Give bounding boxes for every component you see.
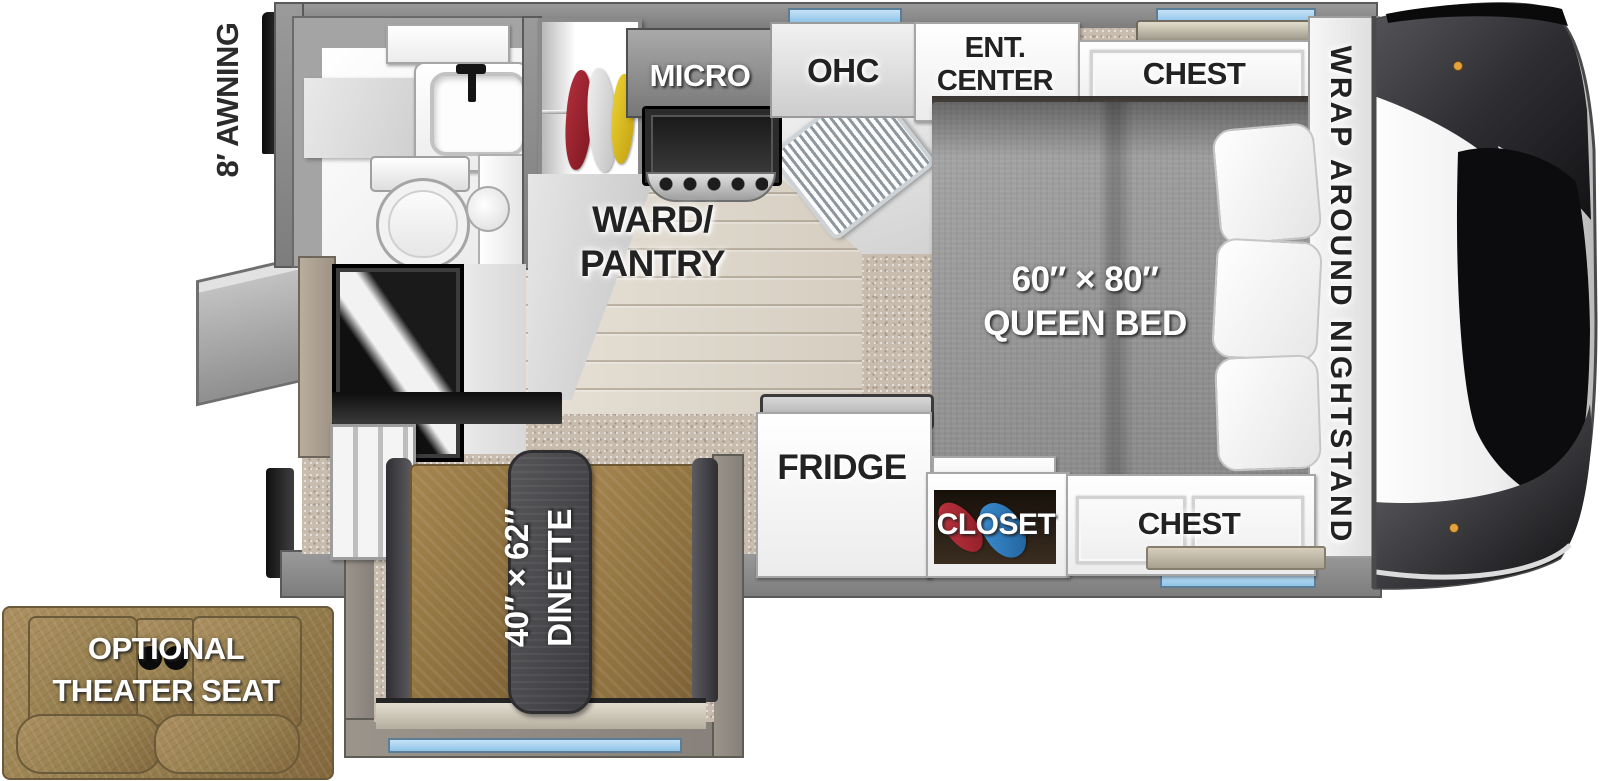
bed-pillow-3 xyxy=(1214,354,1322,472)
ent-center-label: ENT. CENTER xyxy=(916,32,1074,99)
ward-pantry-label-line1: WARD/ xyxy=(540,198,765,242)
nightstand-label: WRAP AROUND NIGHTSTAND xyxy=(1317,45,1357,545)
bed-pillow-1 xyxy=(1211,122,1323,246)
theater-seat-label-line2: THEATER SEAT xyxy=(12,670,320,712)
queen-bed-name: QUEEN BED xyxy=(945,302,1225,346)
shower-head-icon xyxy=(466,186,510,232)
window-top-kitchen xyxy=(788,8,902,24)
toilet-bowl xyxy=(376,178,470,270)
bathroom-overhead-cabinet xyxy=(386,24,510,64)
dinette-backrest-left xyxy=(386,458,412,702)
ent-center-label-line2: CENTER xyxy=(916,65,1074,98)
theater-seat-cushion-right xyxy=(154,714,300,774)
ohc-label: OHC xyxy=(774,52,912,90)
fridge-label: FRIDGE xyxy=(758,448,926,488)
awning-label: 8′ AWNING xyxy=(210,0,246,200)
floorplan-canvas: 8′ AWNING MICRO OHC E xyxy=(0,0,1600,781)
stove-knobs-icon xyxy=(652,176,768,192)
closet-label: CLOSET xyxy=(926,508,1066,543)
queen-bed-label: 60″ × 80″ QUEEN BED xyxy=(945,258,1225,346)
entry-threshold xyxy=(332,392,562,424)
slide-wall-right xyxy=(714,456,742,756)
marker-light-icon xyxy=(1454,62,1463,71)
theater-seat-cushion-left xyxy=(16,714,162,774)
marker-light-icon xyxy=(1450,524,1459,533)
ward-pantry-label-line2: PANTRY xyxy=(540,242,765,286)
ward-pantry-label: WARD/ PANTRY xyxy=(540,198,765,287)
bed-pillow-2 xyxy=(1211,237,1323,362)
dinette-name: DINETTE xyxy=(539,468,582,688)
front-cap xyxy=(1370,0,1600,600)
ent-center-label-line1: ENT. xyxy=(916,32,1074,65)
micro-label: MICRO xyxy=(630,58,770,94)
slide-window xyxy=(388,738,682,753)
dinette-size: 40″ × 62″ xyxy=(496,468,539,688)
dinette-backrest-right xyxy=(692,458,718,702)
chest-bottom-label: CHEST xyxy=(1068,506,1310,542)
faucet-spout-icon xyxy=(468,72,476,102)
theater-seat-label-line1: OPTIONAL xyxy=(12,628,320,670)
chest-top-label: CHEST xyxy=(1080,56,1308,92)
dinette-bench-right xyxy=(578,464,698,704)
bathroom-sink xyxy=(430,72,526,156)
dinette-label: 40″ × 62″ DINETTE xyxy=(496,468,596,688)
queen-bed-size: 60″ × 80″ xyxy=(945,258,1225,302)
door-swing-area xyxy=(454,264,526,454)
bathroom-counter xyxy=(304,78,418,158)
bed-platform-trim xyxy=(1146,546,1326,570)
theater-seat-label: OPTIONAL THEATER SEAT xyxy=(12,628,320,712)
fridge xyxy=(756,412,932,578)
door-jamb xyxy=(300,258,334,456)
